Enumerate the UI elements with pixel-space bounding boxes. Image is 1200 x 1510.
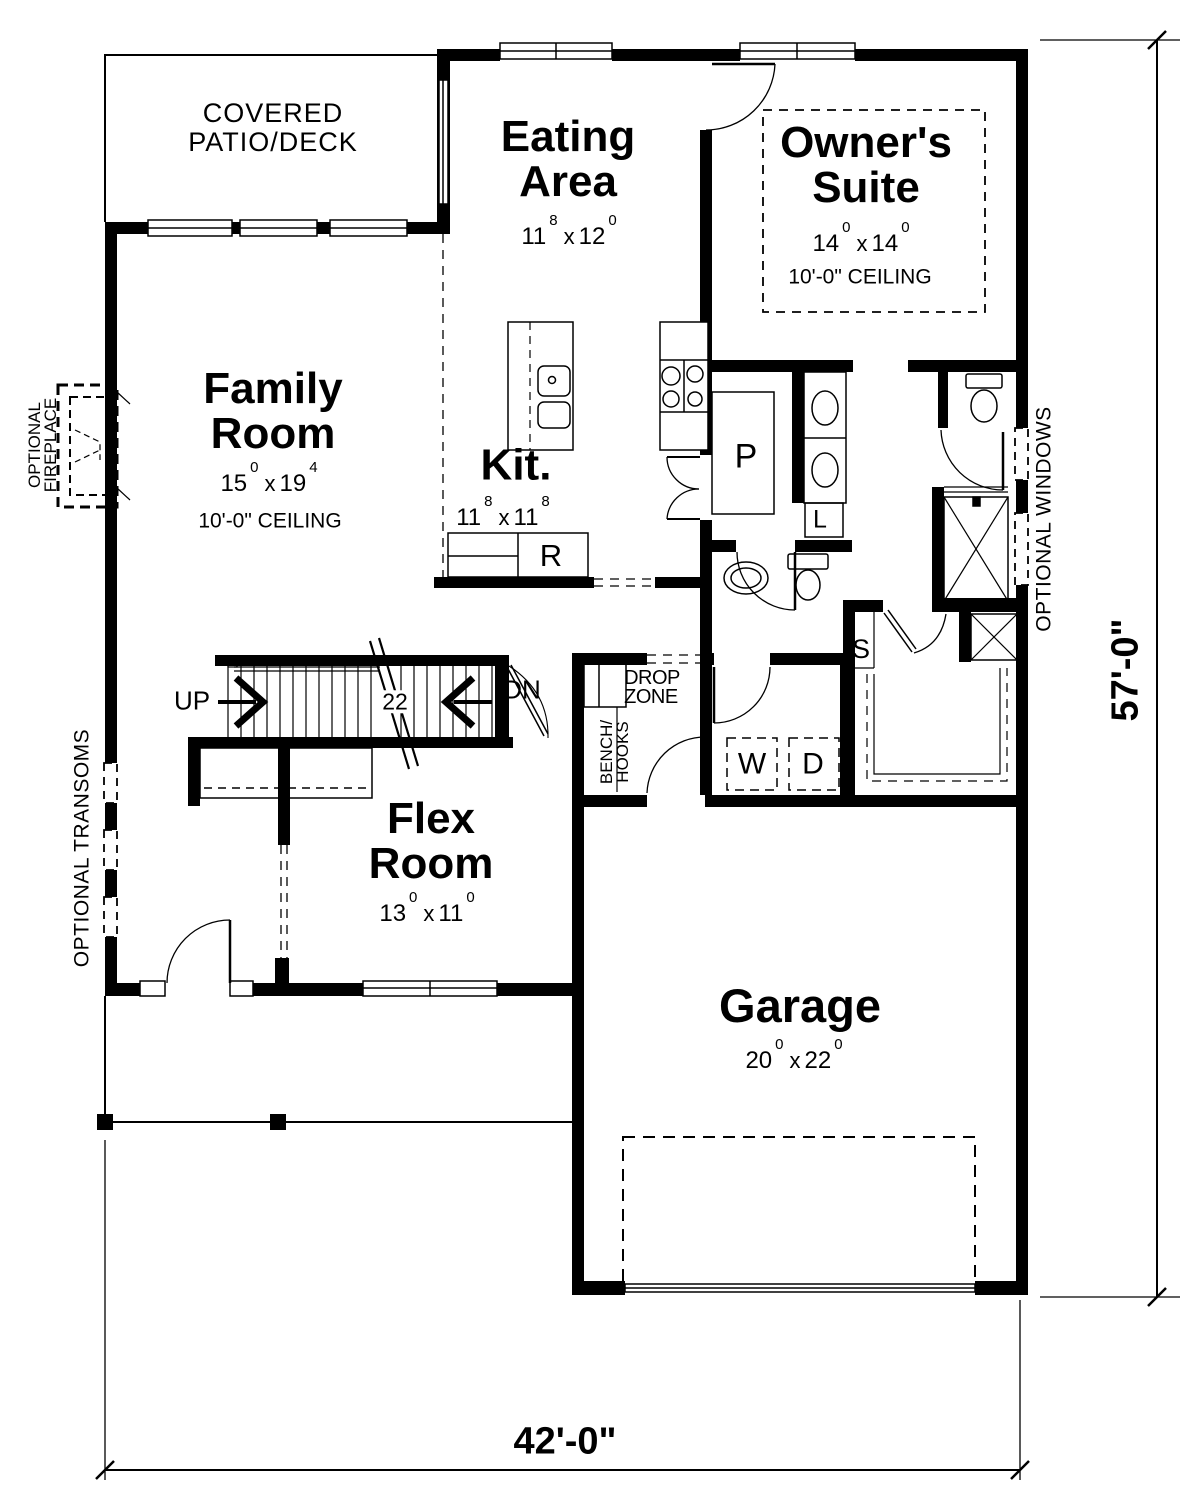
family-room-label: FamilyRoom — [203, 367, 342, 457]
bath-door — [737, 552, 795, 610]
porch-outline — [105, 996, 578, 1122]
optional-fireplace — [58, 385, 130, 507]
owners-suite-dimensions: 140x140 — [812, 230, 911, 256]
garage-door — [625, 1284, 975, 1292]
range-counter — [448, 533, 588, 577]
double-vanity — [804, 372, 846, 503]
owners-suite-door — [706, 64, 775, 130]
stairs-down-label: DN — [503, 677, 541, 704]
dryer-label: D — [802, 750, 824, 781]
wc-toilet — [966, 374, 1002, 422]
flex-room-dimensions: 130x110 — [379, 900, 476, 926]
eating-area-label: EatingArea — [501, 115, 635, 205]
closet-double-doors — [884, 610, 946, 653]
overall-width-dimension: 42'-0" — [513, 1423, 616, 1462]
pantry-double-doors — [667, 457, 700, 519]
family-room-dimensions: 150x194 — [220, 470, 319, 496]
kitchen-dimensions: 118x118 — [456, 504, 552, 530]
wc-door — [941, 430, 1003, 490]
kitchen-island — [508, 322, 573, 450]
floor-plan-page: COVEREDPATIO/DECK EatingArea 118x120 Own… — [0, 0, 1200, 1510]
eating-area-dimensions: 118x120 — [521, 223, 618, 249]
stairs-up-label: UP — [174, 688, 210, 715]
garage-entry-door — [647, 737, 705, 795]
optional-windows-label: OPTIONAL WINDOWS — [1033, 406, 1054, 631]
pantry-label: P — [735, 440, 758, 475]
washer-label: W — [738, 750, 766, 781]
front-door — [167, 920, 230, 983]
range-label: R — [540, 540, 562, 572]
kitchen-label: Kit. — [481, 444, 552, 489]
laundry-door — [714, 667, 770, 723]
optional-fireplace-label: OPTIONALFIREPLACE — [27, 398, 59, 492]
owners-suite-label: Owner'sSuite — [780, 121, 952, 211]
overall-height-dimension: 57'-0" — [1107, 618, 1146, 721]
stairs-riser-count: 22 — [379, 690, 411, 713]
garage-dashed-box — [623, 1137, 975, 1287]
patio-label: COVEREDPATIO/DECK — [188, 99, 358, 157]
flex-room-label: FlexRoom — [369, 797, 494, 887]
shower — [944, 487, 1008, 601]
closet-cabinet-x — [971, 614, 1017, 660]
garage-dimensions: 200x220 — [745, 1047, 844, 1073]
drop-zone-label: DROPZONE — [624, 669, 680, 707]
garage-label: Garage — [719, 982, 881, 1030]
hall-bath-sink — [724, 562, 768, 594]
up-arrow — [218, 678, 263, 726]
linen-label: L — [813, 507, 827, 533]
closet-shelving — [855, 612, 1007, 781]
bench-hooks-label: BENCH/HOOKS — [599, 720, 631, 784]
optional-transoms-label: OPTIONAL TRANSOMS — [71, 729, 92, 967]
shelf-label: S — [852, 636, 870, 664]
family-room-ceiling: 10'-0" CEILING — [198, 510, 341, 531]
owners-suite-ceiling: 10'-0" CEILING — [788, 266, 931, 287]
cooktop-counter — [660, 322, 708, 450]
